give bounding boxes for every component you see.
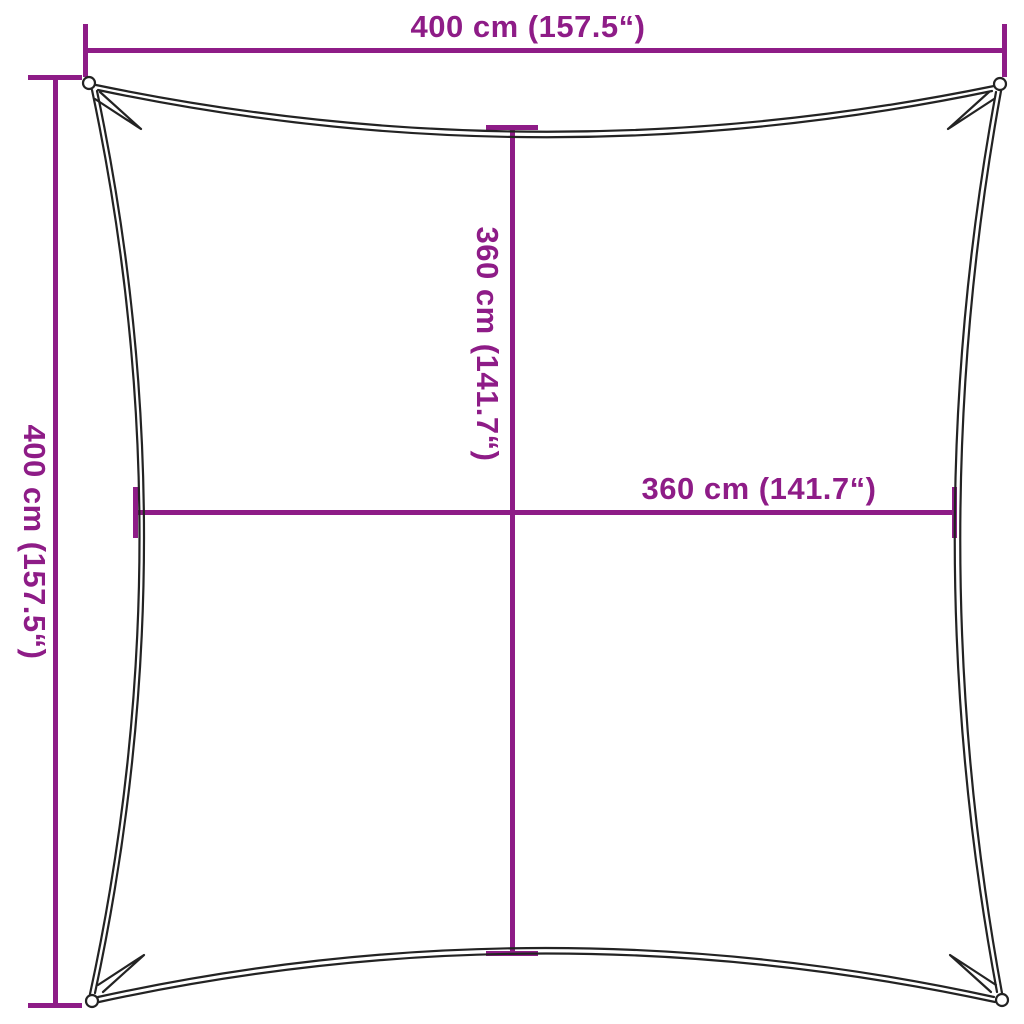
sail-edge-top-outer xyxy=(96,85,994,132)
corner-eyelet-bottom-left xyxy=(86,995,98,1007)
sail-corners xyxy=(83,77,1008,1007)
sail-edge-top-inner xyxy=(98,90,992,137)
sail-edges xyxy=(90,85,1002,1002)
sail-edge-bottom-outer xyxy=(99,954,995,1003)
corner-wedge-bottom-left xyxy=(98,955,144,992)
corner-wedge-bottom-right xyxy=(950,955,996,992)
sail-edge-bottom-inner xyxy=(98,948,994,997)
shade-sail-drawing xyxy=(0,0,1024,1024)
corner-eyelet-top-left xyxy=(83,77,95,89)
corner-eyelet-top-right xyxy=(994,78,1006,90)
left-dimension-label: 400 cm (157.5“) xyxy=(16,425,52,660)
corner-eyelet-bottom-right xyxy=(996,994,1008,1006)
sail-edge-left-outer xyxy=(90,90,140,994)
center-horizontal-dimension-label: 360 cm (141.7“) xyxy=(642,471,877,507)
center-vertical-dimension-label: 360 cm (141.7“) xyxy=(469,227,505,462)
top-dimension-label: 400 cm (157.5“) xyxy=(411,9,646,45)
sail-edge-right-outer xyxy=(960,91,1002,993)
product-dimension-diagram: 400 cm (157.5“) 400 cm (157.5“) 360 cm (… xyxy=(0,0,1024,1024)
sail-edge-left-inner xyxy=(95,91,144,993)
